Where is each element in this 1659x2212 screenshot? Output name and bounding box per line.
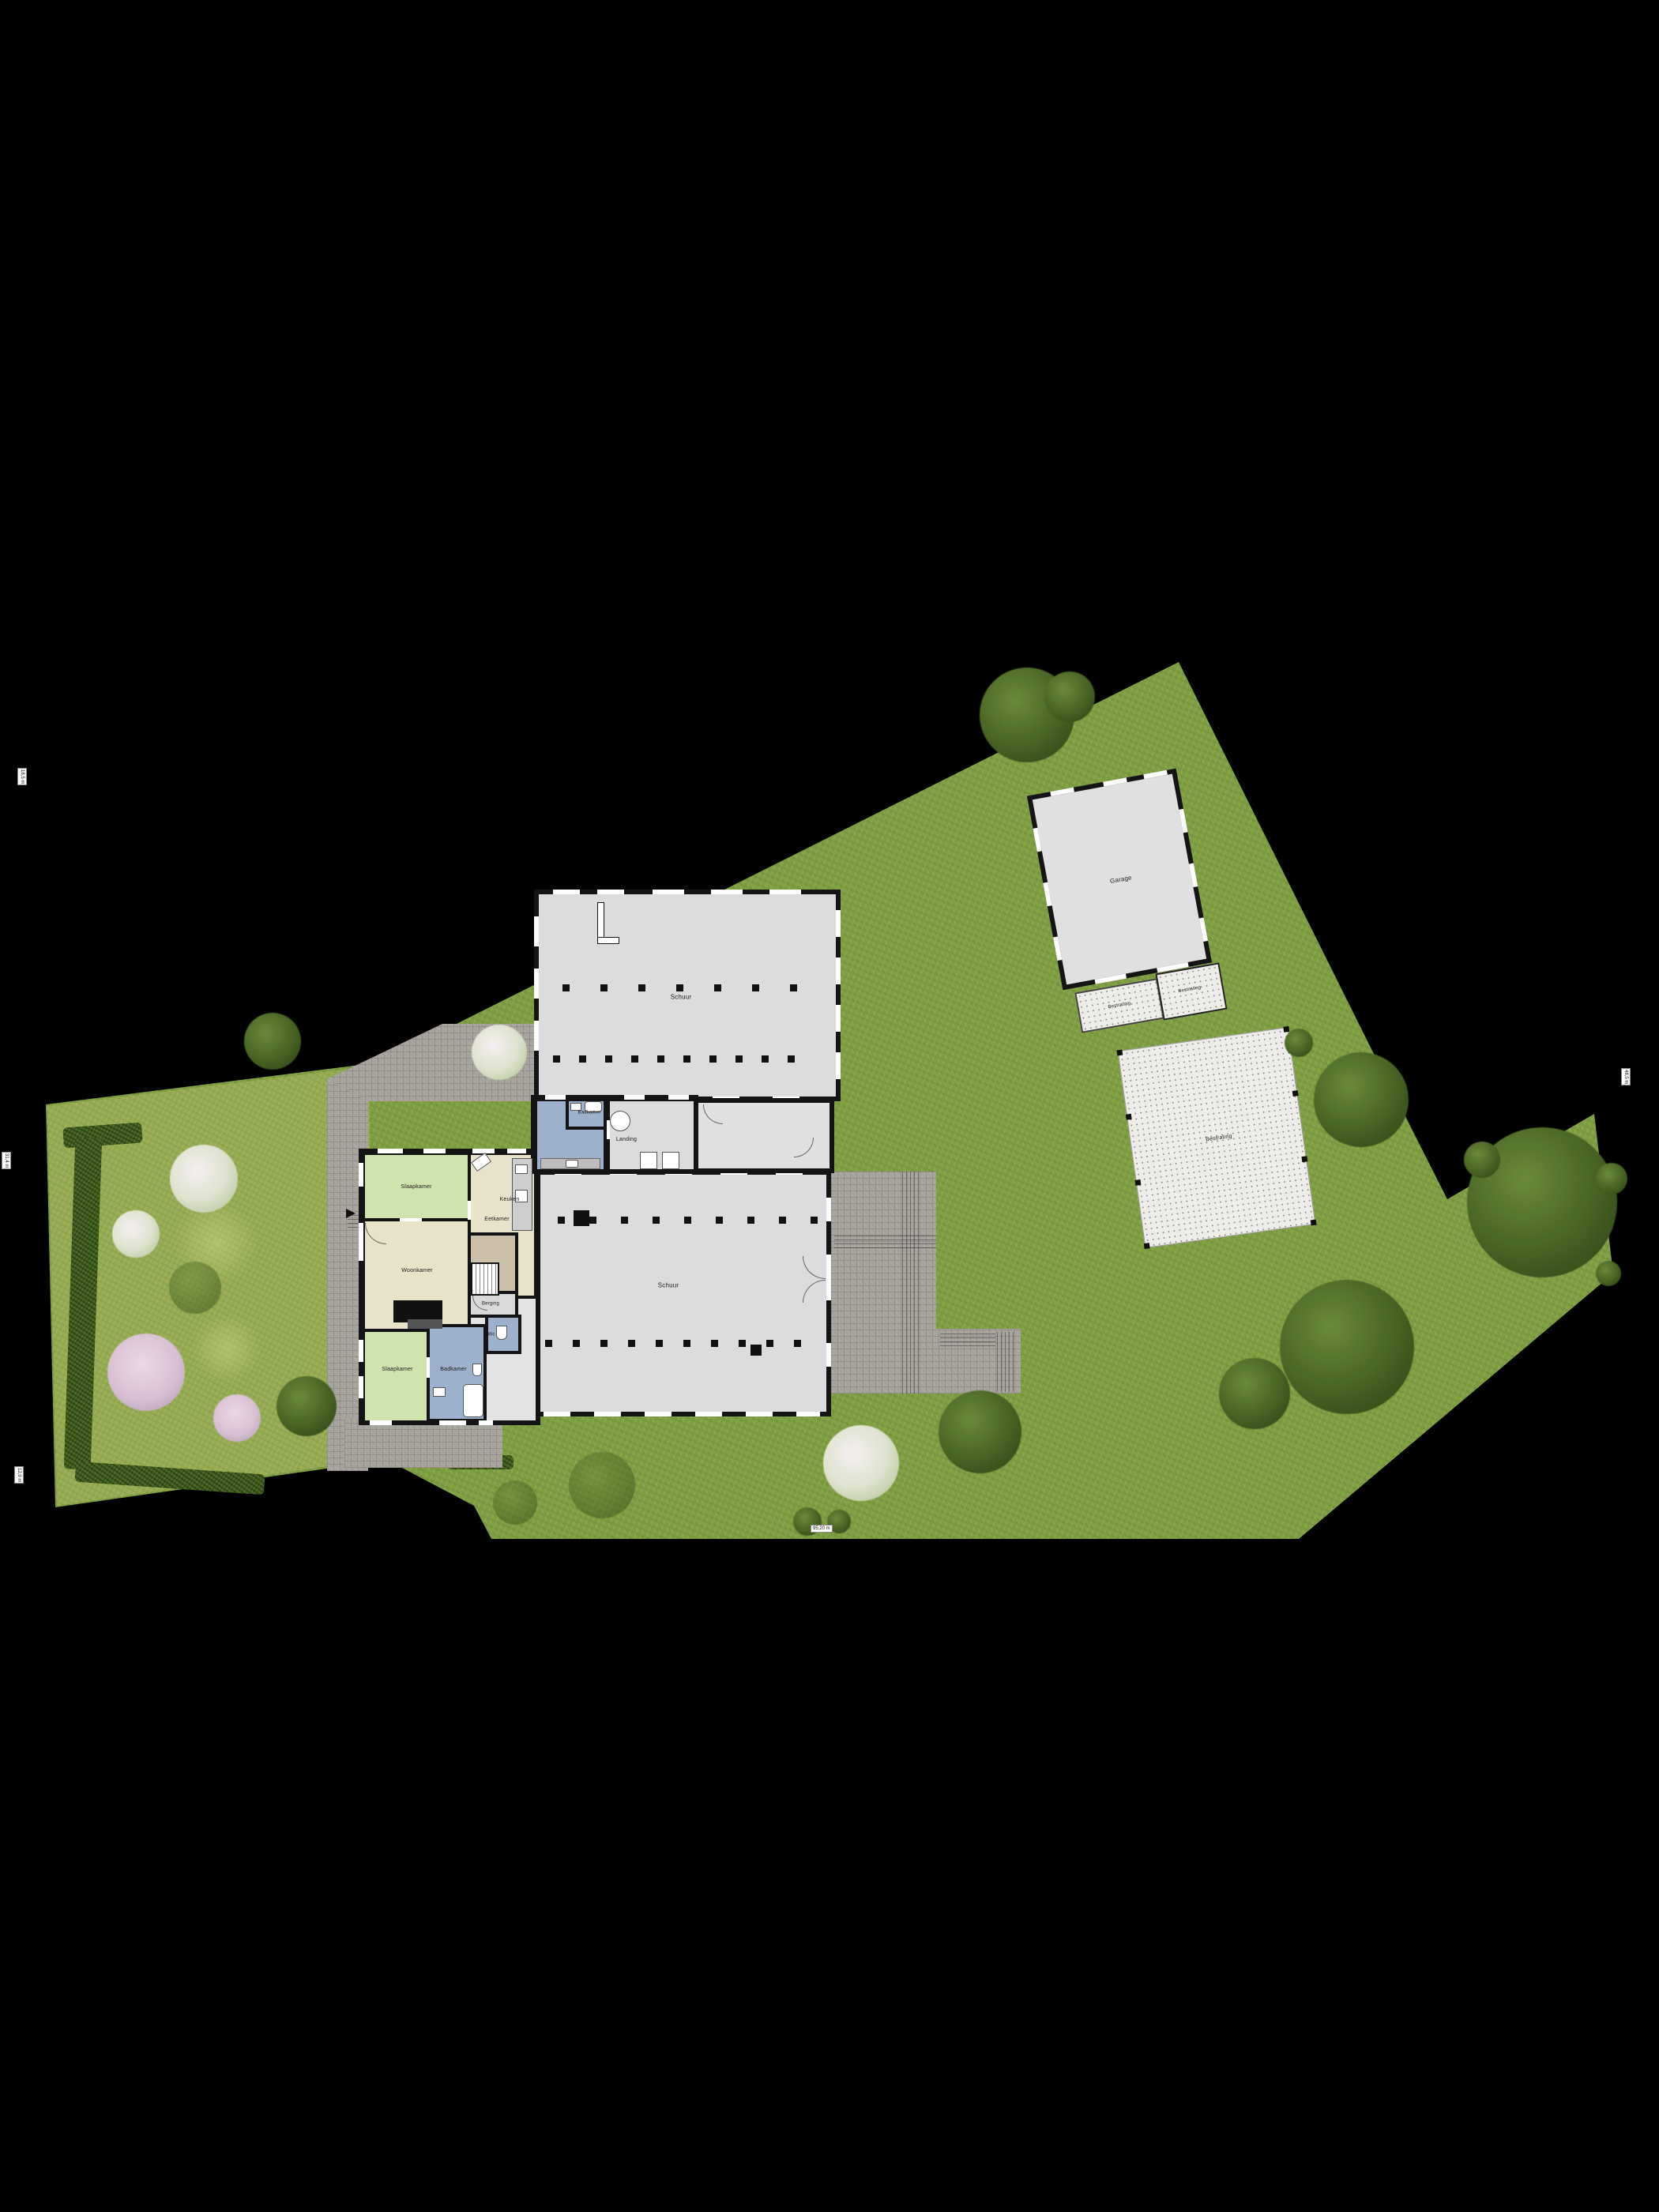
toilet [496,1326,507,1340]
column-post [656,1340,663,1347]
fence-post [1144,1243,1150,1249]
column-post [558,1217,565,1224]
window [594,1412,621,1416]
column-post [683,1055,690,1063]
room-label-storage: Berging [482,1302,499,1307]
tree [276,1376,337,1436]
window [479,1420,493,1425]
door-opening [400,1218,422,1221]
window [534,1021,539,1051]
window [826,1343,831,1367]
window [370,1420,392,1425]
window [624,1095,645,1100]
column-post [553,1055,560,1063]
door-opening [826,1255,831,1300]
column-post [762,1055,769,1063]
tree [1314,1052,1409,1147]
room-label-living: Woonkamer [401,1268,432,1274]
bathtub [463,1384,483,1417]
faded-shrub [569,1452,635,1518]
column-post [752,984,759,991]
column-post [579,1055,586,1063]
site-plan-canvas: Slaapkamer Keuken Eetkamer Woonkamer Sla… [0,0,1659,2212]
barn-fixture [574,1210,589,1226]
living-cabinet-inset [408,1319,442,1329]
tree [939,1390,1021,1473]
column-post [638,984,645,991]
window [359,1376,363,1398]
grass-light-patch [191,1313,262,1384]
path-steps [902,1172,920,1394]
barn-pillar-foot [597,937,619,944]
column-post [621,1217,628,1224]
shrub [1596,1163,1627,1194]
fence-post [1301,1156,1307,1162]
barn-lower [529,1170,831,1416]
dryer [662,1152,679,1169]
tree [244,1013,301,1070]
dimension-left-mid: 31,4 m [2,1152,11,1169]
path-steps [997,1332,1014,1392]
column-post [653,1217,660,1224]
room-label-bedroom1: Slaapkamer [401,1184,431,1191]
window [746,1412,773,1416]
room-label-dining: Eetkamer [484,1217,510,1223]
door-opening [359,1223,363,1243]
tree [1280,1280,1414,1414]
terrace-south [344,1419,502,1468]
dimension-left-bottom: 12,9 m [14,1466,24,1484]
window [769,890,801,894]
dimension-bottom: 95,20 m [811,1525,833,1533]
column-post [788,1055,795,1063]
blossom-tree [112,1210,160,1258]
window [378,1149,403,1153]
window [695,1412,722,1416]
column-post [735,1055,743,1063]
staircase [471,1262,499,1296]
room-label-landing: Landing [616,1137,637,1143]
column-post [628,1340,635,1347]
column-post [683,1340,690,1347]
window [534,969,539,999]
label-barn-upper: Schuur [671,995,692,1002]
column-post [790,984,797,991]
fence-post [1126,1114,1132,1120]
column-post [766,1340,773,1347]
column-post [794,1340,801,1347]
window [534,916,539,946]
shrub [1596,1261,1621,1286]
window [836,1005,841,1032]
pink-blossom-tree [107,1334,185,1411]
bathroom-sink [433,1387,446,1397]
window [553,890,580,894]
window [668,1095,689,1100]
column-post [562,984,570,991]
dimension-left-top: 18,5 m [17,768,27,785]
column-post [545,1340,552,1347]
round-table [610,1111,630,1131]
fence-post [1311,1220,1317,1226]
column-post [600,984,608,991]
pink-blossom-tree [213,1394,261,1442]
barn-pillar [597,902,604,940]
column-post [573,1340,580,1347]
path-steps [940,1334,995,1346]
column-post [779,1217,786,1224]
faded-shrub [169,1262,221,1314]
column-post [600,1340,608,1347]
room-label-wc: Wc [487,1333,495,1338]
column-post [716,1217,723,1224]
column-post [739,1340,746,1347]
path-steps [834,1232,936,1248]
window [545,1095,566,1100]
label-barn-lower: Schuur [658,1283,679,1290]
scullery-sink [566,1160,578,1168]
window [423,1149,446,1153]
window [796,1412,820,1416]
column-post [589,1217,596,1224]
door-opening [607,1120,610,1139]
column-post [676,984,683,991]
washer [640,1152,657,1169]
window [826,1198,831,1221]
window [359,1163,363,1187]
window [645,1412,671,1416]
entrance-arrow-icon [346,1209,355,1218]
column-post [631,1055,638,1063]
door-opening [427,1357,430,1378]
tree [1219,1358,1290,1429]
blossom-tree [472,1025,527,1080]
column-post [684,1217,691,1224]
window [836,1052,841,1079]
fence-post [1134,1179,1141,1186]
column-post [605,1055,612,1063]
window [836,910,841,937]
room-bedroom2 [362,1329,430,1424]
toilet [472,1364,482,1376]
column-post [747,1217,754,1224]
window [653,890,684,894]
fence-post [1116,1050,1123,1056]
column-post [657,1055,664,1063]
window [711,890,743,894]
shrub [1285,1029,1313,1057]
window [544,1412,570,1416]
window [507,1149,526,1153]
door-opening [468,1201,471,1220]
column-post [714,984,721,991]
column-post [711,1340,718,1347]
room-label-kitchen: Keuken [500,1197,520,1203]
blossom-tree [823,1425,899,1501]
room-label-bathroom: Badkamer [440,1367,467,1373]
room-label-bathroom2: Badkamer [578,1111,601,1116]
barn-fixture [750,1345,762,1356]
column-post [709,1055,717,1063]
column-post [811,1217,818,1224]
window [439,1420,466,1425]
fence-post [1292,1090,1299,1097]
tree [1044,671,1095,722]
window [836,957,841,984]
faded-shrub [493,1480,537,1525]
window [359,1340,363,1362]
dimension-right: 48,5 m [1621,1068,1631,1085]
blossom-tree [170,1145,238,1213]
kitchen-sink [515,1164,528,1174]
shrub [1464,1142,1500,1178]
window [597,890,624,894]
room-label-bedroom2: Slaapkamer [382,1367,412,1373]
bathroom2-sink [570,1103,581,1111]
